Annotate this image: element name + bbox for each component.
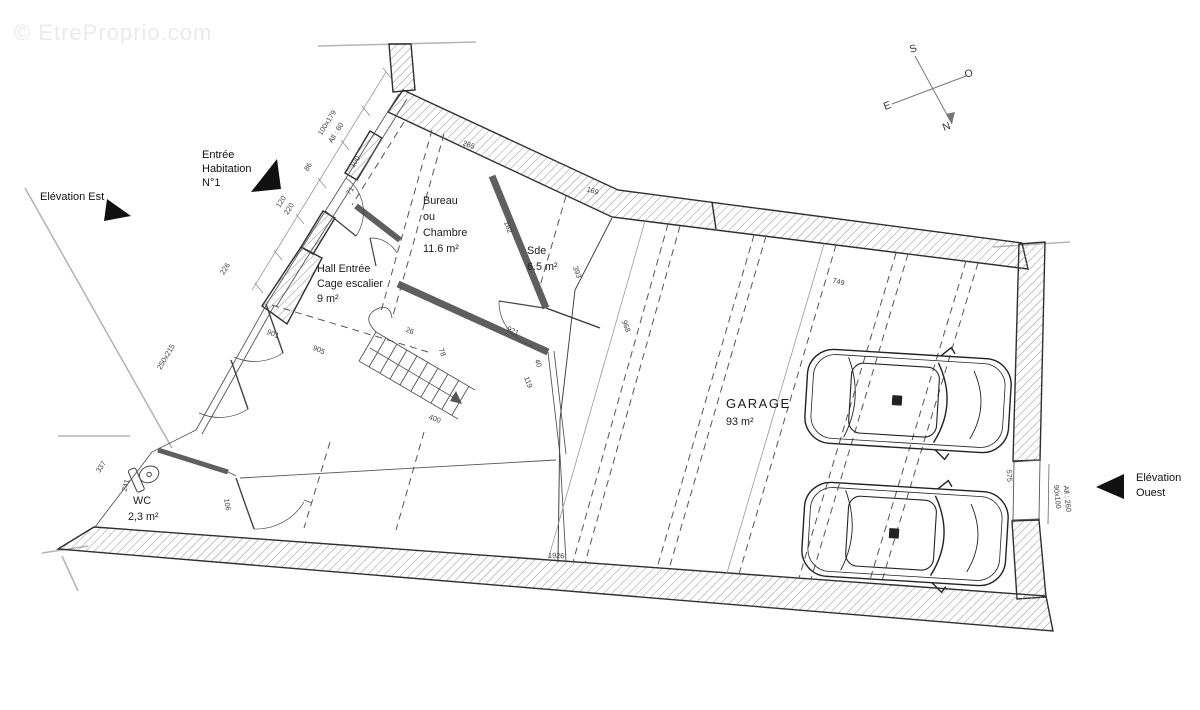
dimension-label: 90x100 <box>1052 484 1063 509</box>
bureau-label-2: ou <box>423 211 435 223</box>
elevation-ouest-arrow <box>1096 474 1124 499</box>
compass-s: S <box>908 42 919 56</box>
dimension-label: 1926 <box>548 551 565 561</box>
wall-east-lower <box>1012 520 1046 599</box>
entree-label-3: N°1 <box>202 177 220 189</box>
doors-layer <box>199 178 544 529</box>
wall-entrance-b <box>301 211 335 254</box>
elevation-ouest-label-1: Elévation <box>1136 472 1181 484</box>
dimension-label: All : 260 <box>1062 485 1074 512</box>
cars-layer <box>800 339 1013 596</box>
compass-o: O <box>963 67 975 81</box>
hall-label-3: 9 m² <box>317 293 339 305</box>
entree-label-1: Entrée <box>202 149 234 161</box>
bureau-label-3: Chambre <box>423 227 467 239</box>
dimension-label: 78 <box>437 347 448 358</box>
wall-entrance-a <box>345 131 382 180</box>
dimension-label: 226 <box>218 261 232 276</box>
bureau-label-4: 11.6 m² <box>423 243 459 255</box>
bureau-label-1: Bureau <box>423 195 458 207</box>
wall-east-upper <box>1013 242 1045 461</box>
dimension-label: 968 <box>620 319 633 334</box>
hall-label-1: Hall Entrée <box>317 263 370 275</box>
staircase <box>359 307 475 419</box>
compass-rose: S O E N <box>882 42 975 134</box>
dimension-label: 26 <box>404 325 415 336</box>
wc-label-2: 2,3 m² <box>128 511 159 523</box>
floor-plan-svg: © EtreProprio.com <box>0 0 1200 710</box>
wall-north <box>388 90 1028 269</box>
partition-walls <box>158 176 548 472</box>
wc-label-1: WC <box>133 495 151 507</box>
elevation-ouest-label-2: Ouest <box>1136 487 1165 499</box>
dimension-label: 40 <box>533 358 544 369</box>
dimension-label: 241 <box>120 478 132 492</box>
dimension-label: 71 <box>344 185 356 197</box>
compass-e: E <box>882 99 893 113</box>
dimension-label: 337 <box>94 459 108 474</box>
garage-label-1: GARAGE <box>726 396 791 411</box>
dimension-label: 400 <box>428 412 443 425</box>
car-top-view-2 <box>800 472 1010 596</box>
walls-layer <box>58 44 1053 631</box>
wall-top-stub <box>389 44 415 92</box>
entree-label-2: Habitation <box>202 163 252 175</box>
elevation-est-label: Elévation Est <box>40 191 104 203</box>
toilet-fixture <box>128 459 163 492</box>
dimension-label: 575 <box>1004 469 1014 482</box>
dimension-label: 905 <box>312 343 327 356</box>
dimension-label: 250x215 <box>155 342 177 371</box>
entree-arrow <box>251 159 281 192</box>
dimension-label: 749 <box>832 276 846 288</box>
garage-label-2: 93 m² <box>726 416 754 428</box>
wall-south <box>58 527 1053 631</box>
dimension-label: 106 <box>222 498 233 512</box>
elevation-est-arrow <box>104 199 131 221</box>
construction-lines <box>25 42 1070 591</box>
car-top-view-1 <box>803 339 1013 463</box>
sde-label-2: 6.5 m² <box>527 261 558 273</box>
dimension-label: 86 <box>302 161 314 173</box>
hall-label-2: Cage escalier <box>317 278 383 290</box>
dimension-label: 119 <box>522 375 534 389</box>
sde-label-1: Sde <box>527 245 546 257</box>
watermark-text: © EtreProprio.com <box>14 20 212 45</box>
